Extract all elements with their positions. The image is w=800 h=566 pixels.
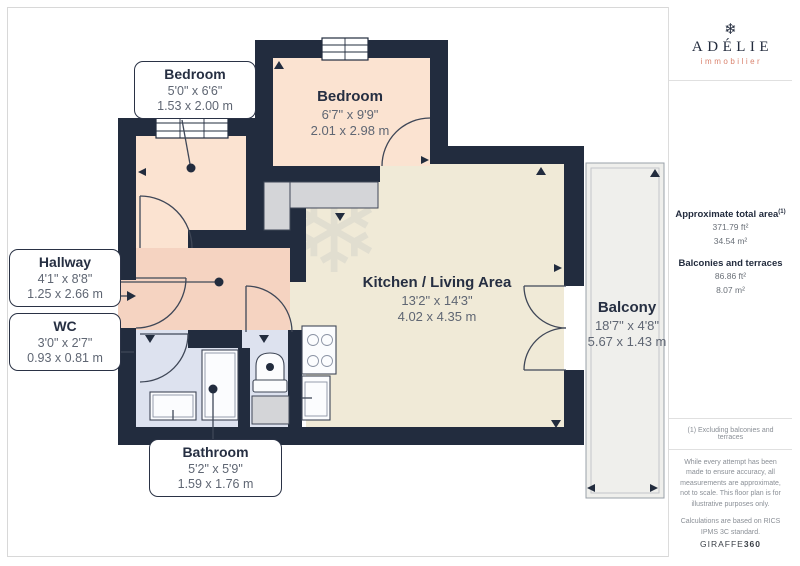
bathroom-sink-icon: [150, 392, 196, 420]
footnote: (1) Excluding balconies and terraces: [669, 419, 792, 450]
floorplan-page: ❄: [0, 0, 800, 566]
snowflake-icon: ❄: [724, 22, 737, 37]
room-dim-metric: 4.02 x 4.35 m: [337, 309, 537, 325]
callout-wc: WC 3'0" x 2'7" 0.93 x 0.81 m: [9, 313, 121, 371]
callout-hallway: Hallway 4'1" x 8'8" 1.25 x 2.66 m: [9, 249, 121, 307]
room-dim-imperial: 3'0" x 2'7": [16, 336, 114, 351]
room-name: Bathroom: [156, 444, 275, 462]
balconies-ft: 86.86 ft²: [669, 269, 792, 283]
room-dim-imperial: 4'1" x 8'8": [16, 272, 114, 287]
room-dim-metric: 5.67 x 1.43 m: [572, 334, 682, 350]
kitchen-sink-icon: [302, 376, 330, 420]
room-name: Balcony: [572, 298, 682, 318]
room-dim-metric: 2.01 x 2.98 m: [270, 123, 430, 139]
room-dim-imperial: 6'7" x 9'9": [270, 107, 430, 123]
total-area-m: 34.54 m²: [669, 234, 792, 248]
window-icon: [322, 38, 368, 60]
total-area-label: Approximate total area(1): [669, 209, 792, 220]
room-dim-metric: 1.53 x 2.00 m: [141, 99, 249, 114]
appliance-niche-icon: [252, 396, 289, 424]
room-name: Bedroom: [141, 66, 249, 84]
disclaimer-text: While every attempt has been made to ens…: [678, 458, 783, 511]
room-dim-imperial: 5'0" x 6'6": [141, 84, 249, 99]
shower-icon: [202, 350, 238, 420]
room-name: Hallway: [16, 254, 114, 272]
label-kitchen-living: Kitchen / Living Area 13'2" x 14'3" 4.02…: [337, 273, 537, 325]
callout-bathroom: Bathroom 5'2" x 5'9" 1.59 x 1.76 m: [149, 439, 282, 497]
disclaimer-block: While every attempt has been made to ens…: [669, 450, 792, 557]
closet-icon: [290, 182, 378, 208]
hob-icon: [302, 326, 336, 374]
room-dim-metric: 1.59 x 1.76 m: [156, 477, 275, 492]
label-bedroom-large: Bedroom 6'7" x 9'9" 2.01 x 2.98 m: [270, 87, 430, 139]
area-summary: Approximate total area(1) 371.79 ft² 34.…: [669, 81, 792, 419]
callout-bedroom-small: Bedroom 5'0" x 6'6" 1.53 x 2.00 m: [134, 61, 256, 119]
toilet-icon: [253, 353, 287, 392]
window-icon: [156, 116, 228, 138]
room-dim-metric: 1.25 x 2.66 m: [16, 287, 114, 302]
room-dim-metric: 0.93 x 0.81 m: [16, 351, 114, 366]
brand-name: ADÉLIE: [688, 39, 773, 56]
brand-block: ❄ ADÉLIE immobilier: [669, 7, 792, 81]
calculations-text: Calculations are based on RICS IPMS 3C s…: [678, 517, 783, 538]
room-name: Kitchen / Living Area: [337, 273, 537, 293]
label-balcony: Balcony 18'7" x 4'8" 5.67 x 1.43 m: [572, 298, 682, 350]
room-dim-imperial: 13'2" x 14'3": [337, 293, 537, 309]
balconies-label: Balconies and terraces: [669, 258, 792, 269]
closet-icon: [264, 182, 290, 230]
balconies-m: 8.07 m²: [669, 283, 792, 297]
brand-tagline: immobilier: [699, 57, 762, 66]
total-area-ft: 371.79 ft²: [669, 220, 792, 234]
room-dim-imperial: 18'7" x 4'8": [572, 318, 682, 334]
info-sidebar: ❄ ADÉLIE immobilier Approximate total ar…: [668, 7, 792, 557]
room-name: Bedroom: [270, 87, 430, 107]
giraffe360-logo: GIRAFFE360: [700, 538, 761, 551]
room-dim-imperial: 5'2" x 5'9": [156, 462, 275, 477]
room-name: WC: [16, 318, 114, 336]
